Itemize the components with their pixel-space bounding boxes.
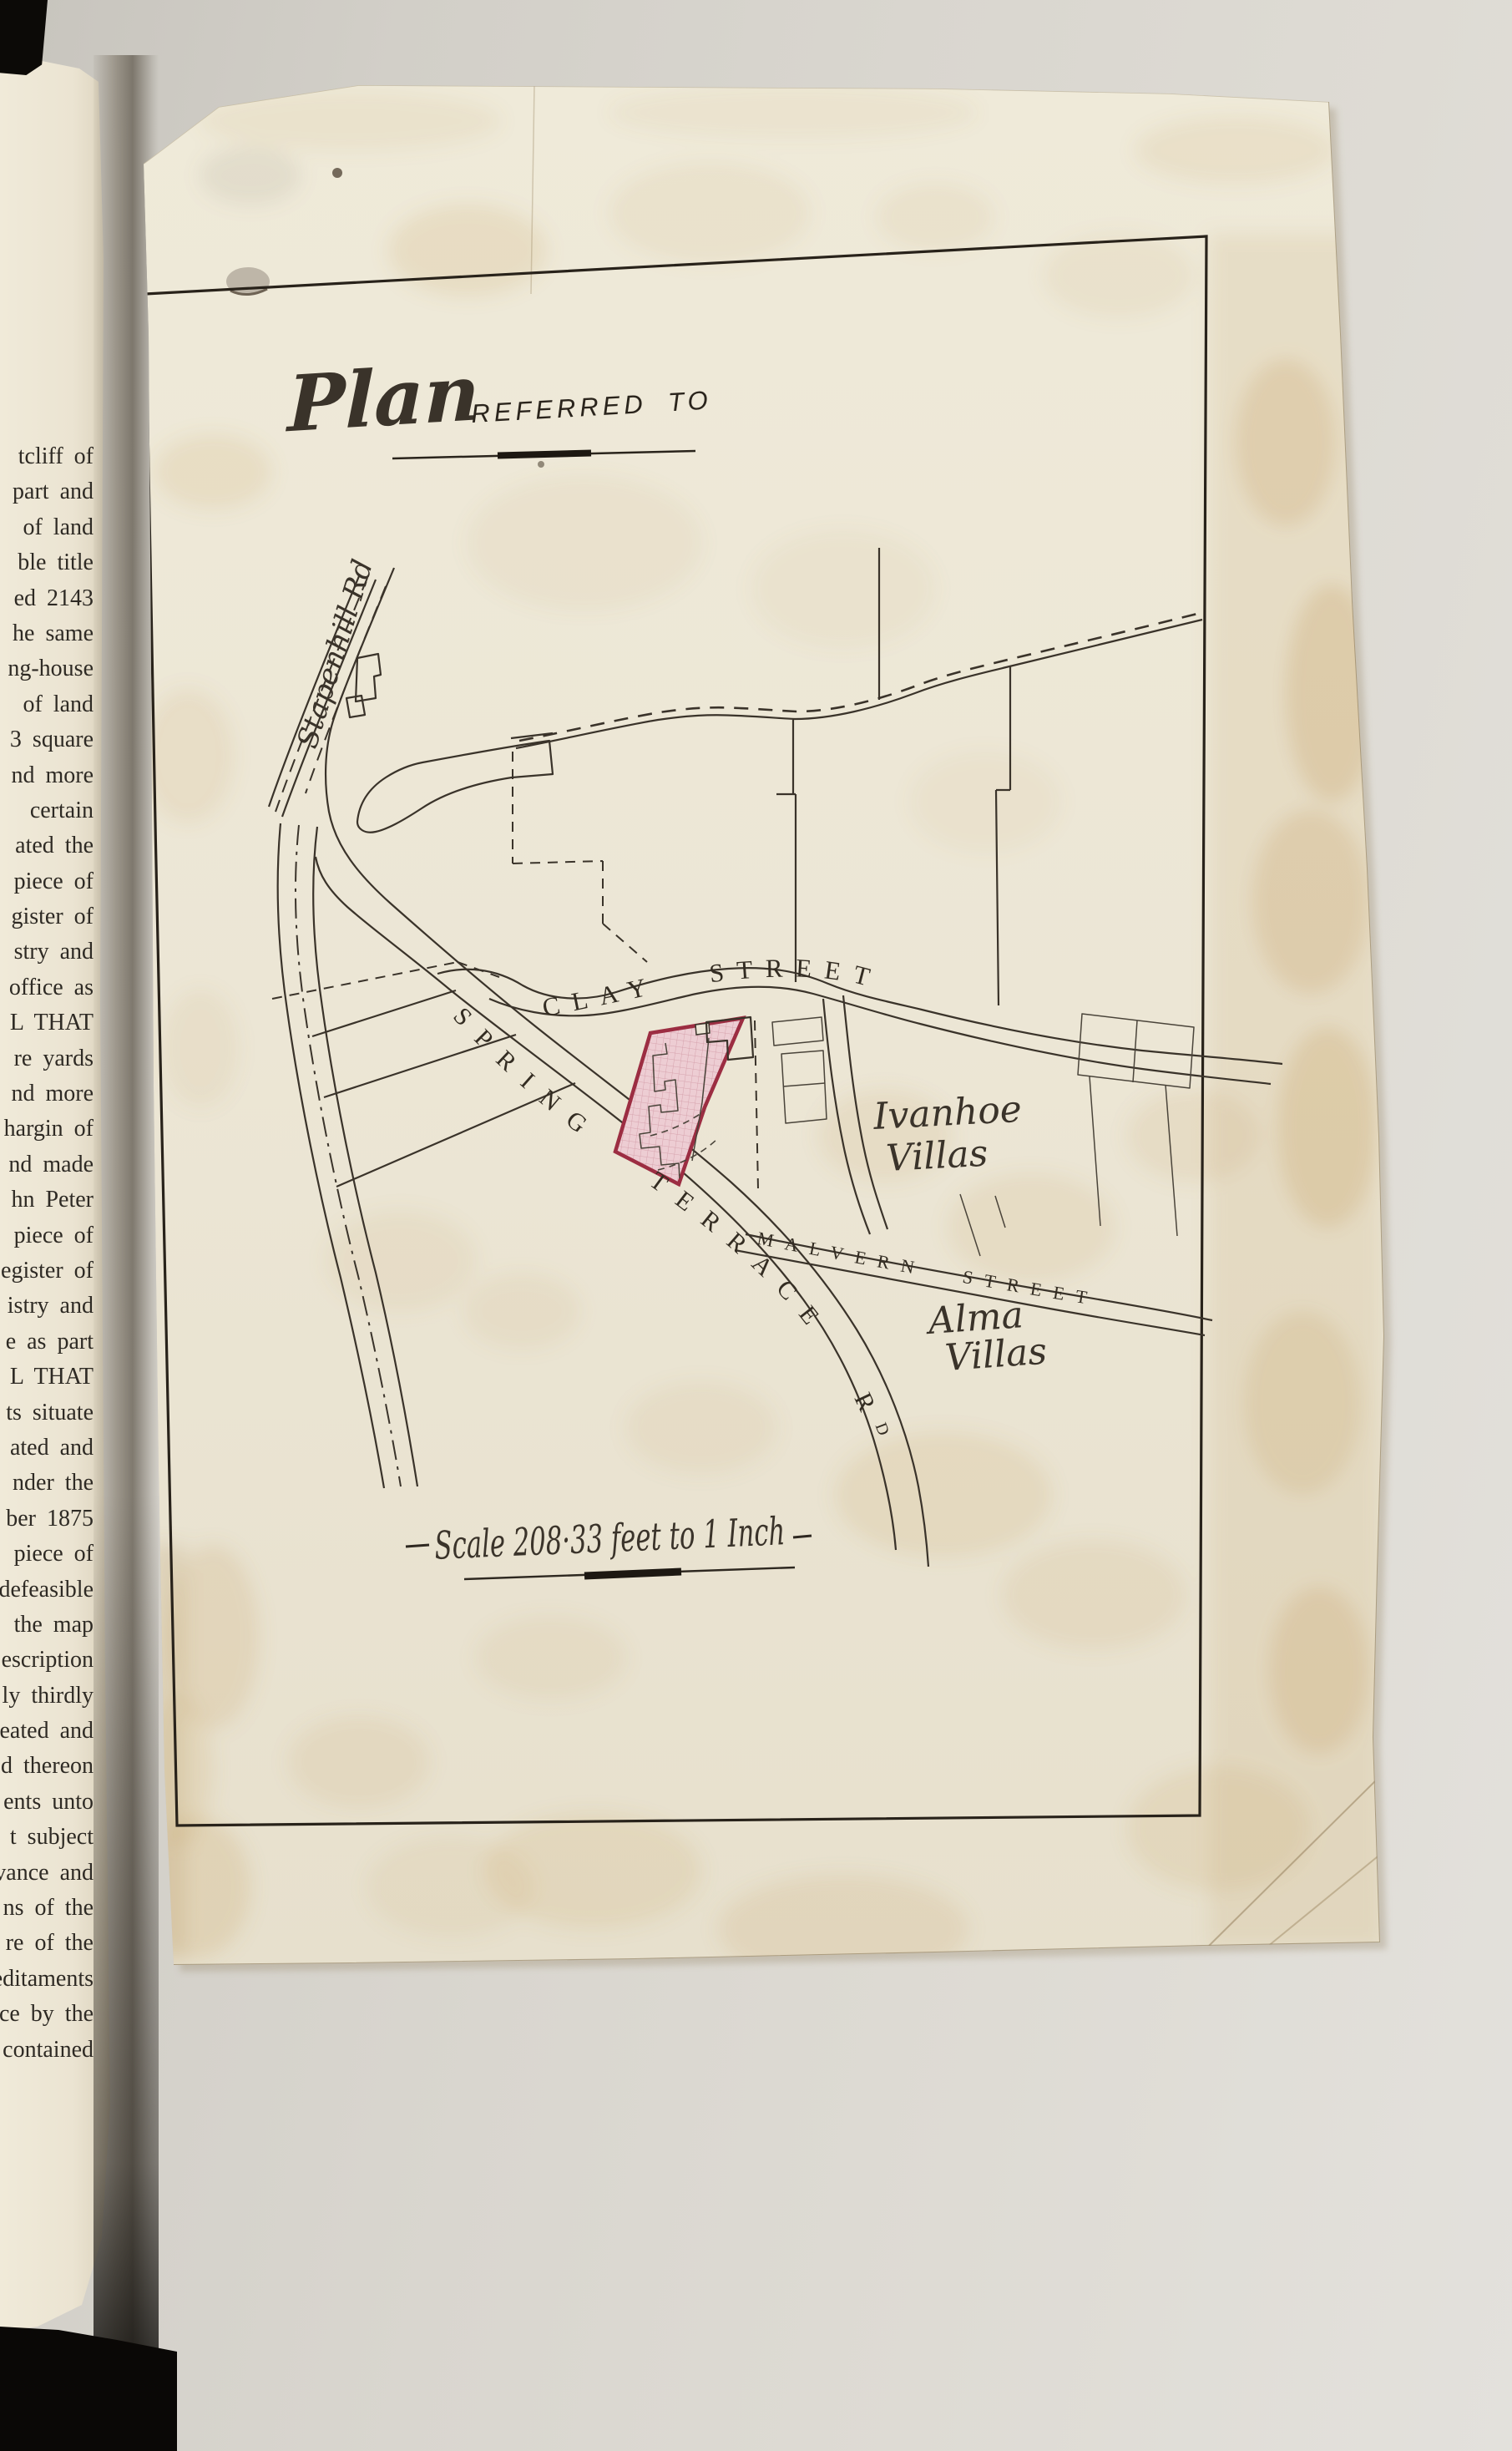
svg-text:Villas: Villas: [943, 1330, 1048, 1380]
svg-text:Villas: Villas: [885, 1132, 989, 1180]
scale-dash-right: [793, 1536, 812, 1537]
scale-underline-bar: [584, 1572, 681, 1576]
title-underline-bar: [498, 453, 591, 456]
plan-title-script: Plan: [285, 347, 480, 449]
svg-text:Ivanhoe: Ivanhoe: [872, 1088, 1023, 1138]
plan-map-sheet: Plan REFERRED TO: [0, 0, 1512, 2451]
scale-dash-left: [406, 1545, 429, 1547]
scanned-deed-plan-page: tcliff ofpart andof landble titleed 2143…: [0, 0, 1512, 2451]
